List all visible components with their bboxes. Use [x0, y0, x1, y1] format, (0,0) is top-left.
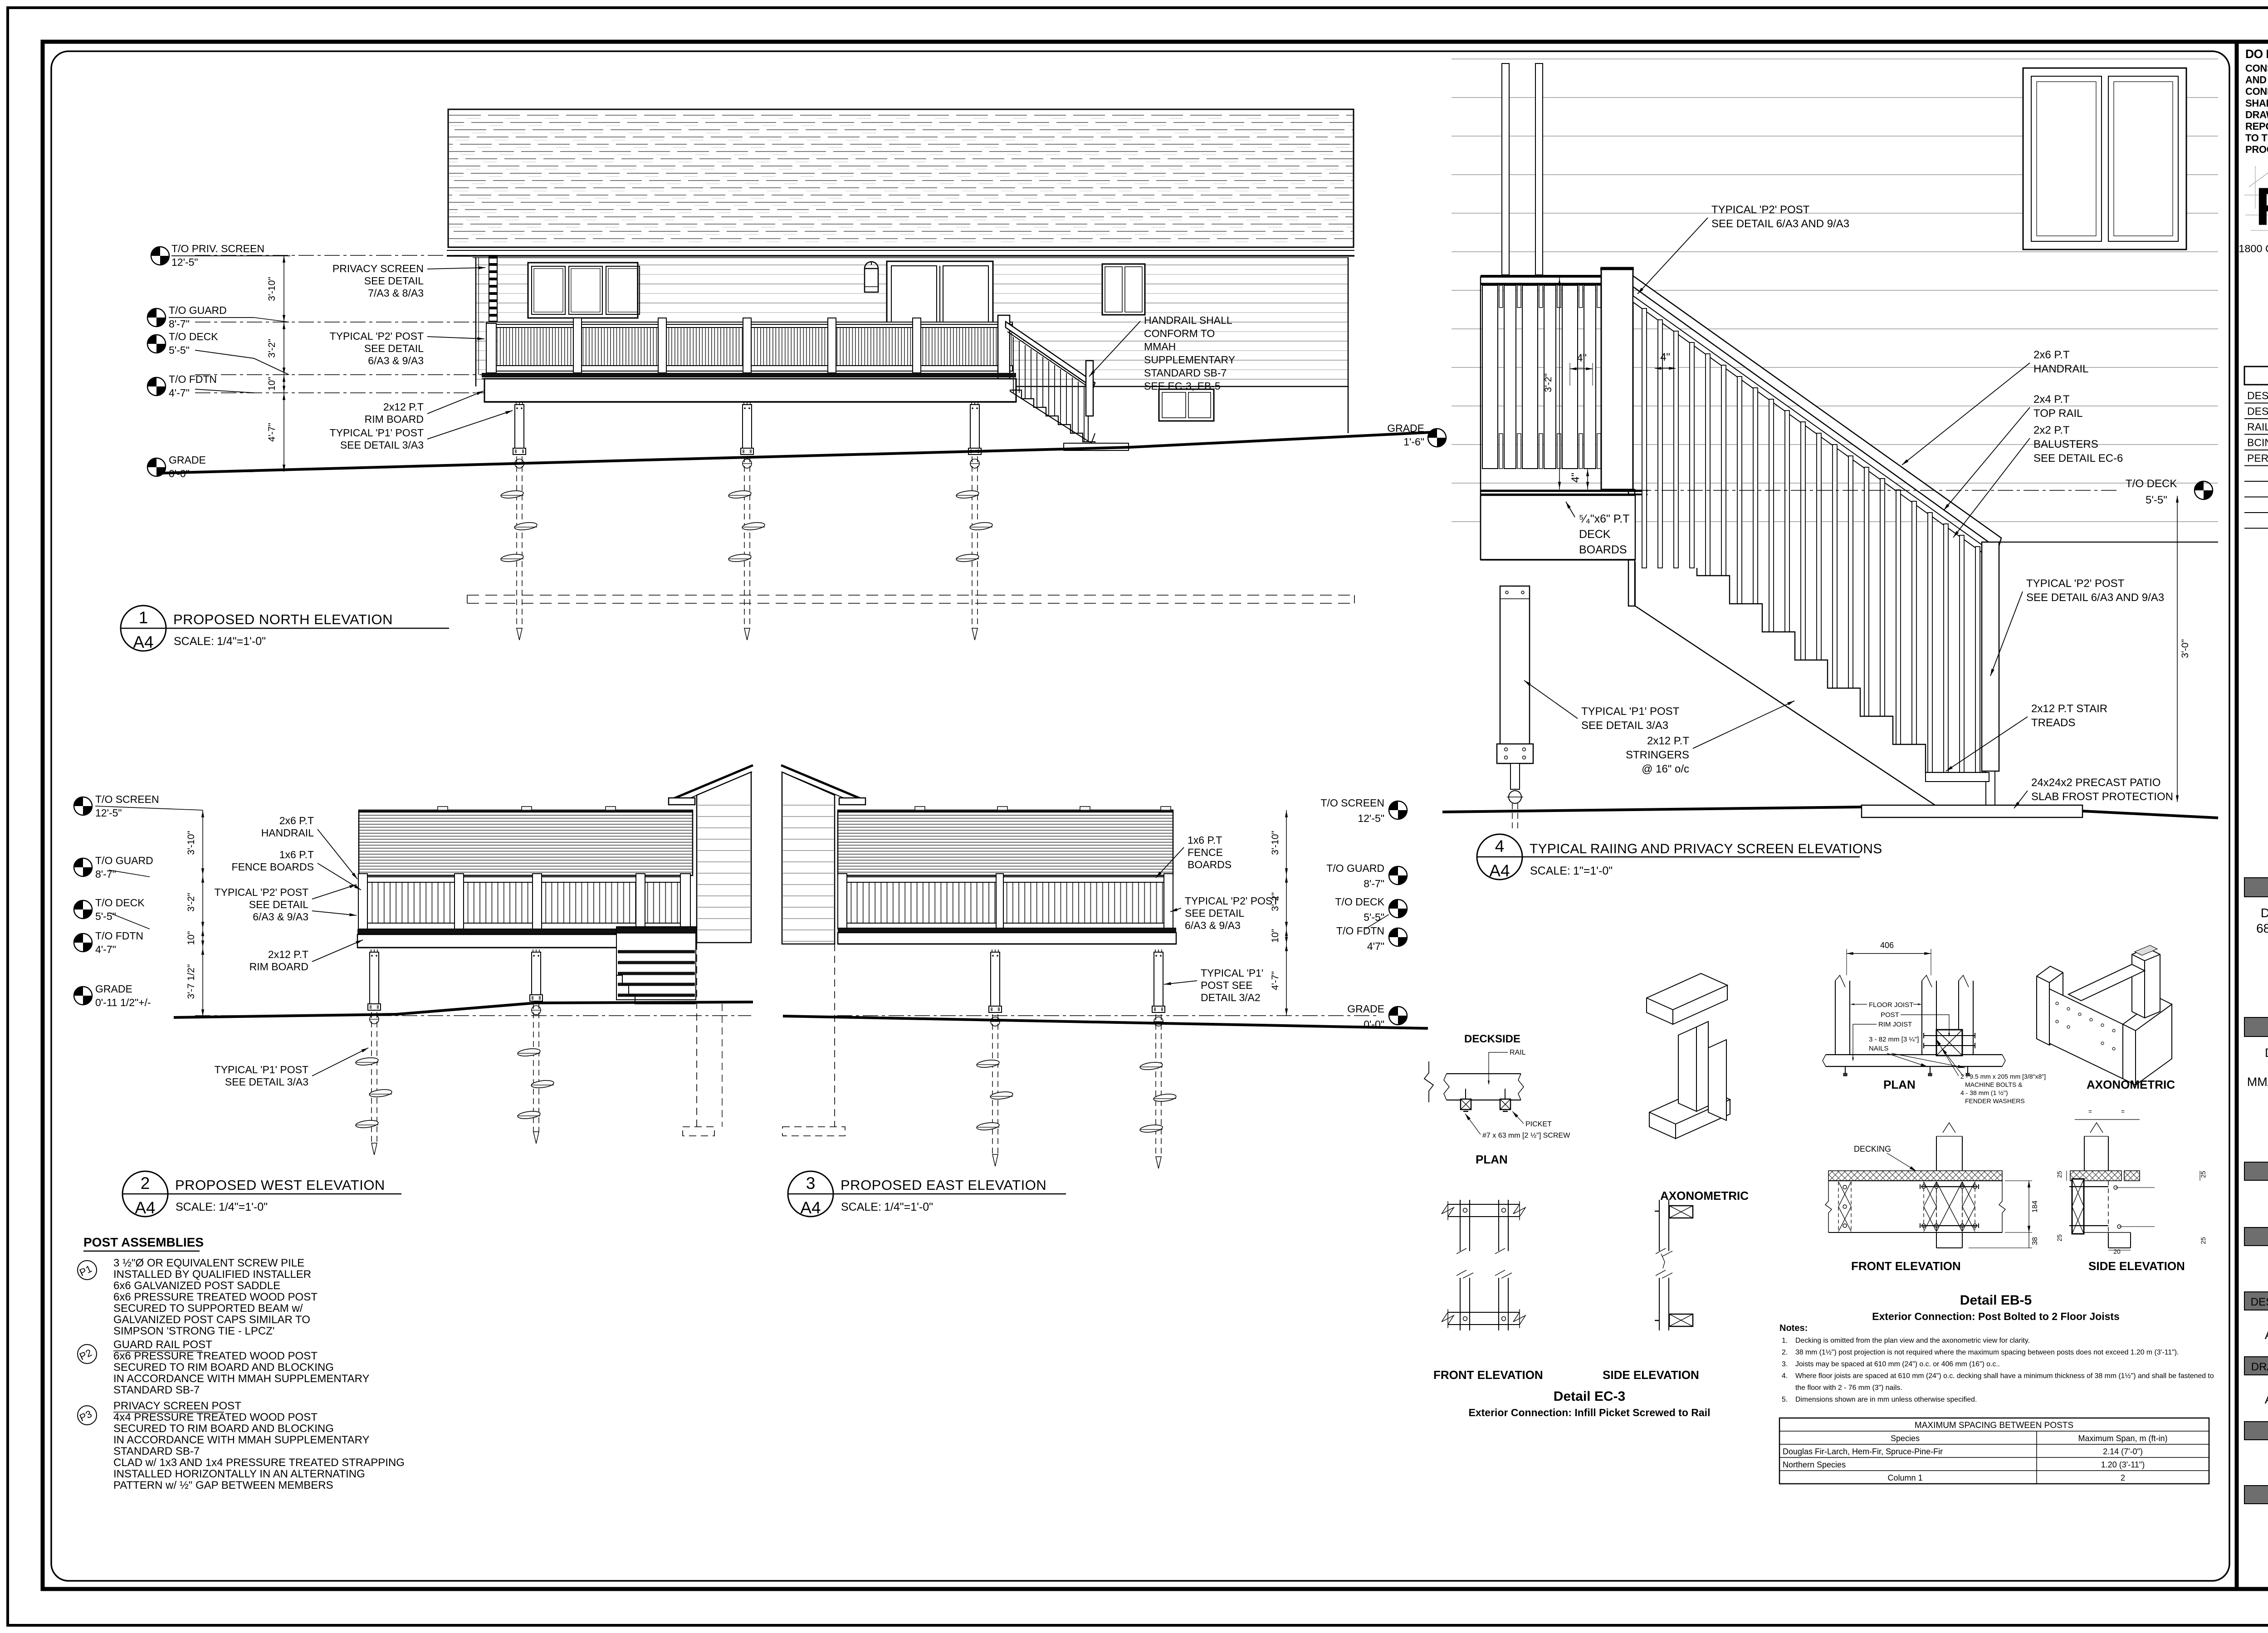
svg-text:DESIGN BY: DESIGN BY: [2251, 1296, 2268, 1308]
svg-text:3'-2": 3'-2": [186, 893, 196, 912]
svg-text:DRAWN BY: DRAWN BY: [2251, 1361, 2268, 1373]
svg-text:TYPICAL 'P2' POST: TYPICAL 'P2' POST: [1185, 895, 1279, 907]
svg-text:T/O FDTN: T/O FDTN: [1336, 925, 1384, 937]
svg-text:PROPOSED NORTH ELEVATION: PROPOSED NORTH ELEVATION: [173, 611, 393, 627]
svg-text:TYPICAL 'P2' POST: TYPICAL 'P2' POST: [215, 886, 308, 898]
svg-text:6x6 GALVANIZED POST SADDLE: 6x6 GALVANIZED POST SADDLE: [113, 1280, 280, 1292]
svg-text:1.20 (3'-11"): 1.20 (3'-11"): [2101, 1460, 2145, 1469]
svg-text:4'-7": 4'-7": [169, 387, 190, 399]
svg-text:GRADE: GRADE: [1387, 422, 1424, 434]
svg-text:TREADS: TREADS: [2031, 717, 2075, 729]
svg-text:POST: POST: [1881, 1011, 1899, 1019]
svg-text:FENCE: FENCE: [1188, 846, 1223, 858]
svg-text:T/O SCREEN: T/O SCREEN: [95, 793, 159, 805]
svg-text:T/O PRIV. SCREEN: T/O PRIV. SCREEN: [171, 243, 264, 254]
svg-text:PLAN: PLAN: [1883, 1078, 1916, 1091]
svg-text:A4: A4: [135, 1198, 155, 1217]
svg-text:NAILS: NAILS: [1869, 1045, 1888, 1052]
svg-text:SIDE ELEVATION: SIDE ELEVATION: [2088, 1259, 2185, 1273]
svg-text:=: =: [2088, 1108, 2092, 1115]
svg-text:Notes:: Notes:: [1779, 1323, 1808, 1333]
svg-text:SIDE ELEVATION: SIDE ELEVATION: [1603, 1368, 1699, 1382]
svg-text:INSTALLED HORIZONTALLY IN AN A: INSTALLED HORIZONTALLY IN AN ALTERNATING: [113, 1468, 365, 1480]
svg-text:TYPICAL 'P1' POST: TYPICAL 'P1' POST: [215, 1064, 308, 1076]
svg-text:SLAB FROST PROTECTION: SLAB FROST PROTECTION: [2031, 791, 2173, 803]
svg-text:A4: A4: [133, 633, 153, 651]
svg-text:SECURED TO RIM BOARD AND BLOCK: SECURED TO RIM BOARD AND BLOCKING: [113, 1361, 334, 1374]
svg-text:4'-7": 4'-7": [267, 423, 277, 442]
svg-text:CONDITIONS ON SITE AND: CONDITIONS ON SITE AND: [2245, 86, 2268, 97]
svg-text:0'-0": 0'-0": [169, 468, 190, 479]
svg-text:1x6 P.T: 1x6 P.T: [1188, 834, 1222, 846]
svg-text:T/O SCREEN: T/O SCREEN: [1320, 797, 1384, 809]
svg-text:SEE DETAIL EC-6: SEE DETAIL EC-6: [2033, 452, 2123, 464]
svg-text:6/A3 & 9/A3: 6/A3 & 9/A3: [368, 355, 424, 367]
svg-text:5'-5": 5'-5": [1364, 911, 1384, 923]
svg-text:IN ACCORDANCE WITH MMAH SUPPLE: IN ACCORDANCE WITH MMAH SUPPLEMENTARY: [113, 1373, 370, 1385]
svg-text:AXONOMETRIC: AXONOMETRIC: [2087, 1078, 2175, 1091]
svg-text:SHALL CHECK AND VERIFY ALL: SHALL CHECK AND VERIFY ALL: [2245, 98, 2268, 109]
svg-text:4": 4": [1660, 351, 1670, 363]
svg-text:T/O FDTN: T/O FDTN: [95, 930, 143, 942]
svg-text:5'-5": 5'-5": [2146, 494, 2167, 506]
svg-text:T/O DECK: T/O DECK: [2126, 478, 2177, 490]
svg-text:DRAWING DIMENSIONS AND: DRAWING DIMENSIONS AND: [2245, 109, 2268, 120]
svg-text:3'-7 1/2": 3'-7 1/2": [186, 964, 196, 999]
svg-text:SEE DETAIL 3/A3: SEE DETAIL 3/A3: [340, 439, 424, 451]
svg-text:T/O GUARD: T/O GUARD: [169, 304, 227, 316]
svg-text:4'-7": 4'-7": [1270, 971, 1281, 990]
svg-text:STANDARD SB-7: STANDARD SB-7: [113, 1445, 200, 1457]
svg-text:GRADE: GRADE: [169, 454, 206, 466]
svg-text:DECKING: DECKING: [1854, 1144, 1891, 1154]
svg-text:SEE DETAIL: SEE DETAIL: [364, 342, 424, 354]
svg-text:Exterior Connection: Post Bolt: Exterior Connection: Post Bolted to 2 Fl…: [1872, 1310, 2120, 1322]
svg-text:Detail EB-5: Detail EB-5: [1960, 1293, 2032, 1308]
svg-text:PICKET: PICKET: [1525, 1120, 1552, 1128]
svg-text:2x12 P.T: 2x12 P.T: [1647, 735, 1689, 747]
svg-text:4x4 PRESSURE TREATED WOOD POST: 4x4 PRESSURE TREATED WOOD POST: [113, 1411, 318, 1423]
svg-text:GRADE: GRADE: [95, 983, 132, 995]
svg-text:Joists may be spaced at 610 mm: Joists may be spaced at 610 mm (24") o.c…: [1795, 1360, 2000, 1368]
svg-text:RAIL: RAIL: [1510, 1049, 1526, 1056]
svg-text:DESIGN FINAL: DESIGN FINAL: [2247, 406, 2268, 417]
svg-text:FENCE BOARDS: FENCE BOARDS: [232, 861, 314, 873]
svg-text:Decking is omitted from the pl: Decking is omitted from the plan view an…: [1795, 1337, 2030, 1345]
svg-text:IN ACCORDANCE WITH MMAH SUPPLE: IN ACCORDANCE WITH MMAH SUPPLEMENTARY: [113, 1434, 370, 1446]
svg-text:3'-10": 3'-10": [1270, 831, 1281, 855]
svg-text:406: 406: [1880, 941, 1894, 950]
svg-text:4'7": 4'7": [1367, 940, 1384, 952]
svg-text:3'-0": 3'-0": [2180, 639, 2190, 658]
svg-text:SEE DETAIL 3/A3: SEE DETAIL 3/A3: [1581, 719, 1668, 732]
svg-text:1/4"=1'-0": 1/4"=1'-0": [884, 1201, 933, 1213]
svg-text:1/4"=1'-0": 1/4"=1'-0": [219, 1201, 268, 1213]
svg-text:PROPOSED EAST ELEVATION: PROPOSED EAST ELEVATION: [841, 1177, 1046, 1193]
svg-text:38 mm (1½") post projection is: 38 mm (1½") post projection is not requi…: [1795, 1349, 2179, 1356]
svg-text:1"=1'-0": 1"=1'-0": [1573, 865, 1613, 877]
svg-text:1.: 1.: [1782, 1337, 1788, 1345]
svg-text:2x12 P.T: 2x12 P.T: [268, 949, 308, 960]
svg-text:6/A3 & 9/A3: 6/A3 & 9/A3: [1185, 919, 1241, 931]
svg-text:MMAH S.S. SB-7 DETAILS: MMAH S.S. SB-7 DETAILS: [2247, 1075, 2268, 1089]
svg-text:T/O FDTN: T/O FDTN: [169, 373, 217, 385]
svg-text:3'-2": 3'-2": [1543, 373, 1554, 392]
svg-text:TOP RAIL: TOP RAIL: [2033, 407, 2083, 420]
svg-text:Northern Species: Northern Species: [1783, 1460, 1846, 1469]
svg-text:A.A.L: A.A.L: [2265, 1328, 2268, 1342]
svg-text:Detail EC-3: Detail EC-3: [1554, 1389, 1625, 1404]
svg-text:2.: 2.: [1782, 1349, 1788, 1356]
svg-text:5.: 5.: [1782, 1396, 1788, 1403]
svg-text:25: 25: [2200, 1237, 2207, 1244]
svg-text:PLAN: PLAN: [1476, 1153, 1508, 1166]
svg-text:1/4"=1'-0": 1/4"=1'-0": [217, 635, 266, 648]
svg-text:SUPPLEMENTARY: SUPPLEMENTARY: [1144, 354, 1235, 366]
svg-text:A.A.L: A.A.L: [2265, 1392, 2268, 1406]
svg-text:Douglas Fir-Larch, Hem-Fir, Sp: Douglas Fir-Larch, Hem-Fir, Spruce-Pine-…: [1783, 1447, 1943, 1456]
svg-text:STRINGERS: STRINGERS: [1626, 749, 1689, 761]
svg-text:25: 25: [2200, 1171, 2207, 1178]
svg-text:BALUSTERS: BALUSTERS: [2033, 438, 2098, 450]
svg-text:2x12 P.T: 2x12 P.T: [383, 401, 424, 413]
svg-text:RIM JOIST: RIM JOIST: [1878, 1021, 1912, 1028]
svg-text:2x6 P.T: 2x6 P.T: [2033, 349, 2070, 361]
svg-text:DESIGN REV: DESIGN REV: [2247, 390, 2268, 401]
svg-text:MACHINE BOLTS &: MACHINE BOLTS &: [1965, 1081, 2023, 1088]
svg-text:Maximum Span, m (ft-in): Maximum Span, m (ft-in): [2078, 1434, 2167, 1443]
svg-text:25: 25: [2056, 1171, 2063, 1178]
svg-text:2x2 P.T: 2x2 P.T: [2033, 424, 2070, 436]
svg-text:4'-7": 4'-7": [95, 944, 116, 955]
svg-text:GRADE: GRADE: [1347, 1003, 1384, 1015]
svg-text:SECURED TO RIM BOARD AND BLOCK: SECURED TO RIM BOARD AND BLOCKING: [113, 1423, 334, 1435]
svg-text:PROCEEDING WITH THE WORK: PROCEEDING WITH THE WORK: [2245, 144, 2268, 155]
svg-text:4": 4": [1569, 473, 1582, 483]
svg-text:INSTALLED BY QUALIFIED INSTALL: INSTALLED BY QUALIFIED INSTALLER: [113, 1268, 311, 1281]
svg-text:DECK ELEVATIONS: DECK ELEVATIONS: [2265, 1046, 2268, 1060]
svg-text:FRONT ELEVATION: FRONT ELEVATION: [1851, 1259, 1961, 1273]
svg-text:6x6 PRESSURE TREATED WOOD POST: 6x6 PRESSURE TREATED WOOD POST: [113, 1350, 318, 1362]
svg-text:6/A3 & 9/A3: 6/A3 & 9/A3: [253, 911, 308, 923]
svg-text:POST ASSEMBLIES: POST ASSEMBLIES: [83, 1235, 204, 1249]
svg-text:SIMPSON 'STRONG TIE - LPCZ': SIMPSON 'STRONG TIE - LPCZ': [113, 1325, 274, 1337]
svg-text:4 - 38 mm (1 ½"): 4 - 38 mm (1 ½"): [1960, 1089, 2008, 1096]
svg-text:3 - 82 mm [3 ¼"]: 3 - 82 mm [3 ¼"]: [1869, 1036, 1919, 1043]
svg-text:TYPICAL 'P1' POST: TYPICAL 'P1' POST: [330, 427, 424, 439]
svg-text:REPORT ANY INCONSISTENCIES: REPORT ANY INCONSISTENCIES: [2245, 121, 2268, 132]
svg-text:SEE DETAIL 6/A3 AND 9/A3: SEE DETAIL 6/A3 AND 9/A3: [1711, 218, 1849, 230]
svg-text:SEE DETAIL 3/A3: SEE DETAIL 3/A3: [225, 1076, 308, 1088]
svg-text:RIM BOARD: RIM BOARD: [365, 413, 424, 425]
svg-text:4": 4": [1577, 352, 1587, 364]
svg-text:TYPICAL 'P1' POST: TYPICAL 'P1' POST: [1581, 705, 1680, 718]
svg-text:HANDRAIL SHALL: HANDRAIL SHALL: [1144, 314, 1232, 326]
svg-text:SCALE:: SCALE:: [176, 1201, 216, 1213]
svg-text:3.: 3.: [1782, 1360, 1788, 1368]
svg-text:Species: Species: [1891, 1434, 1920, 1443]
svg-text:BOARDS: BOARDS: [1579, 543, 1627, 556]
svg-text:184: 184: [2031, 1201, 2039, 1213]
svg-text:T/O DECK: T/O DECK: [1335, 896, 1384, 908]
svg-text:2: 2: [141, 1174, 150, 1193]
svg-text:RIM BOARD: RIM BOARD: [249, 961, 308, 973]
svg-text:DECK RENOVATION: DECK RENOVATION: [2261, 906, 2268, 920]
svg-text:FL: FL: [2255, 177, 2268, 237]
svg-text:SEE EC-3, EB-5: SEE EC-3, EB-5: [1144, 380, 1221, 392]
svg-text:DECK: DECK: [1579, 528, 1611, 541]
svg-text:TYPICAL RAIING AND PRIVACY SCR: TYPICAL RAIING AND PRIVACY SCREEN ELEVAT…: [1530, 841, 1882, 856]
svg-text:Dimensions shown are in mm unl: Dimensions shown are in mm unless otherw…: [1795, 1396, 1977, 1403]
svg-text:2: 2: [2121, 1473, 2125, 1482]
svg-text:PRIVACY SCREEN: PRIVACY SCREEN: [332, 263, 424, 274]
svg-text:POST SEE: POST SEE: [1201, 979, 1253, 991]
svg-text:DO NOT SCALE DRAWINGS: DO NOT SCALE DRAWINGS: [2245, 47, 2268, 61]
svg-text:Column 1: Column 1: [1887, 1473, 1922, 1482]
svg-text:TYPICAL 'P1': TYPICAL 'P1': [1201, 967, 1263, 979]
svg-text:DECKSIDE: DECKSIDE: [1464, 1033, 1520, 1045]
svg-text:RAILING REV: RAILING REV: [2247, 421, 2268, 433]
svg-text:2.14 (7'-0"): 2.14 (7'-0"): [2103, 1447, 2143, 1456]
svg-text:3'-10": 3'-10": [267, 277, 277, 301]
svg-text:2x6 P.T: 2x6 P.T: [279, 815, 314, 826]
svg-text:AXONOMETRIC: AXONOMETRIC: [1660, 1189, 1749, 1203]
svg-text:SEE DETAIL: SEE DETAIL: [1185, 907, 1244, 919]
svg-text:12'-5": 12'-5": [171, 256, 198, 268]
svg-text:AND VERIFY ALL EXISTING: AND VERIFY ALL EXISTING: [2245, 74, 2268, 86]
svg-text:0'-0": 0'-0": [1364, 1018, 1384, 1030]
svg-text:38: 38: [2031, 1237, 2039, 1245]
svg-text:SEE DETAIL 6/A3 AND 9/A3: SEE DETAIL 6/A3 AND 9/A3: [2026, 592, 2164, 604]
svg-text:DETAIL 3/A2: DETAIL 3/A2: [1201, 992, 1261, 1003]
svg-text:68 HILLCREST DRIVE: 68 HILLCREST DRIVE: [2256, 921, 2268, 935]
svg-text:0'-11 1/2"+/-: 0'-11 1/2"+/-: [95, 997, 151, 1008]
svg-text:PATTERN w/ ½" GAP BETWEEN MEMB: PATTERN w/ ½" GAP BETWEEN MEMBERS: [113, 1479, 333, 1491]
svg-text:TYPICAL 'P2' POST: TYPICAL 'P2' POST: [2026, 577, 2125, 590]
svg-text:CONFORM TO: CONFORM TO: [1144, 328, 1215, 339]
svg-text:2x4 P.T: 2x4 P.T: [2033, 393, 2070, 406]
svg-text:the floor with 2 - 76 mm (3"): the floor with 2 - 76 mm (3") nails.: [1795, 1384, 1902, 1392]
svg-text:8'-7": 8'-7": [169, 318, 190, 330]
svg-text:2x12 P.T STAIR: 2x12 P.T STAIR: [2031, 703, 2107, 715]
svg-text:T/O GUARD: T/O GUARD: [1326, 862, 1384, 874]
svg-text:3'-10": 3'-10": [186, 831, 196, 855]
svg-text:8'-7": 8'-7": [1364, 878, 1384, 890]
svg-text:20: 20: [2113, 1248, 2121, 1255]
svg-text:GUARD RAIL POST: GUARD RAIL POST: [113, 1339, 212, 1351]
svg-text:#7 x 63 mm [2 ½"] SCREW: #7 x 63 mm [2 ½"] SCREW: [1482, 1132, 1570, 1139]
svg-text:8'-7": 8'-7": [95, 868, 116, 880]
svg-text:Exterior Connection: Infill Pi: Exterior Connection: Infill Picket Screw…: [1469, 1407, 1711, 1418]
svg-text:FENDER WASHERS: FENDER WASHERS: [1965, 1097, 2025, 1105]
svg-text:SCALE:: SCALE:: [1530, 865, 1570, 877]
svg-text:A4: A4: [800, 1198, 821, 1217]
svg-text:3: 3: [806, 1174, 816, 1193]
svg-text:TO THE DESIGNER BEFORE: TO THE DESIGNER BEFORE: [2245, 132, 2268, 144]
svg-text:SEE DETAIL: SEE DETAIL: [249, 899, 308, 910]
svg-text:12'-5": 12'-5": [95, 807, 122, 819]
svg-text:GALVANIZED POST CAPS SIMILAR T: GALVANIZED POST CAPS SIMILAR TO: [113, 1314, 310, 1326]
svg-text:10": 10": [267, 377, 277, 391]
svg-text:HANDRAIL: HANDRAIL: [261, 827, 314, 839]
svg-text:3'-2": 3'-2": [267, 339, 277, 358]
svg-text:TYPICAL 'P2' POST: TYPICAL 'P2' POST: [1711, 204, 1810, 216]
svg-text:10": 10": [186, 931, 196, 945]
svg-text:⁵⁄₄"x6" P.T: ⁵⁄₄"x6" P.T: [1579, 513, 1630, 525]
svg-text:T/O DECK: T/O DECK: [169, 331, 218, 342]
svg-text:1'-6": 1'-6": [1403, 436, 1424, 448]
svg-text:SCALE:: SCALE:: [174, 635, 214, 648]
svg-text:1x6 P.T: 1x6 P.T: [279, 849, 314, 861]
svg-text:25: 25: [2056, 1234, 2063, 1242]
svg-text:PERMIT: PERMIT: [2247, 452, 2268, 464]
svg-text:@ 16" o/c: @ 16" o/c: [1642, 763, 1689, 775]
svg-text:T/O GUARD: T/O GUARD: [95, 855, 153, 866]
svg-text:5'-5": 5'-5": [169, 344, 190, 356]
svg-text:=: =: [2121, 1108, 2125, 1115]
svg-text:HANDRAIL: HANDRAIL: [2033, 363, 2088, 375]
svg-text:4: 4: [1495, 837, 1505, 856]
svg-text:MAXIMUM SPACING BETWEEN POSTS: MAXIMUM SPACING BETWEEN POSTS: [1915, 1421, 2073, 1430]
svg-text:1: 1: [139, 608, 148, 627]
svg-text:PRIVACY SCREEN POST: PRIVACY SCREEN POST: [113, 1400, 241, 1412]
svg-text:10": 10": [1270, 929, 1281, 943]
svg-text:6x6 PRESSURE TREATED WOOD POST: 6x6 PRESSURE TREATED WOOD POST: [113, 1291, 318, 1303]
svg-text:STANDARD SB-7: STANDARD SB-7: [1144, 367, 1227, 379]
svg-text:5'-5": 5'-5": [95, 910, 116, 922]
svg-text:BOARDS: BOARDS: [1188, 859, 1232, 870]
svg-text:1800 CORAL COURT, SUDBURY: 1800 CORAL COURT, SUDBURY: [2239, 243, 2268, 254]
svg-text:3'-2": 3'-2": [1270, 892, 1281, 911]
svg-text:BCIN: BCIN: [2247, 437, 2268, 449]
svg-text:SECURED TO SUPPORTED BEAM w/: SECURED TO SUPPORTED BEAM w/: [113, 1302, 303, 1315]
svg-text:SEE DETAIL: SEE DETAIL: [364, 275, 424, 287]
svg-text:2 - 9.5 mm x 205 mm [3/8"x8"]: 2 - 9.5 mm x 205 mm [3/8"x8"]: [1960, 1073, 2046, 1080]
svg-text:3 ½"Ø OR EQUIVALENT SCREW PILE: 3 ½"Ø OR EQUIVALENT SCREW PILE: [113, 1257, 304, 1269]
svg-text:MMAH: MMAH: [1144, 341, 1176, 352]
svg-text:FRONT ELEVATION: FRONT ELEVATION: [1433, 1368, 1543, 1382]
svg-text:PROPOSED WEST ELEVATION: PROPOSED WEST ELEVATION: [175, 1177, 385, 1193]
svg-text:24x24x2 PRECAST PATIO: 24x24x2 PRECAST PATIO: [2031, 777, 2160, 789]
svg-text:Where floor joists are spaced: Where floor joists are spaced at 610 mm …: [1795, 1372, 2214, 1380]
svg-text:SCALE:: SCALE:: [841, 1201, 881, 1213]
svg-text:A4: A4: [1489, 861, 1510, 880]
svg-text:STANDARD SB-7: STANDARD SB-7: [113, 1384, 200, 1396]
svg-text:12'-5": 12'-5": [1358, 812, 1384, 824]
svg-text:T/O DECK: T/O DECK: [95, 897, 145, 909]
svg-text:7/A3 & 8/A3: 7/A3 & 8/A3: [368, 287, 424, 299]
svg-text:FLOOR JOIST: FLOOR JOIST: [1869, 1001, 1913, 1009]
svg-text:4.: 4.: [1782, 1372, 1788, 1380]
svg-text:TYPICAL 'P2' POST: TYPICAL 'P2' POST: [330, 330, 424, 342]
svg-text:CLAD w/ 1x3 AND 1x4 PRESSURE T: CLAD w/ 1x3 AND 1x4 PRESSURE TREATED STR…: [113, 1457, 405, 1469]
svg-text:CONSTRUCTOR SHALL CHECK: CONSTRUCTOR SHALL CHECK: [2245, 63, 2268, 74]
